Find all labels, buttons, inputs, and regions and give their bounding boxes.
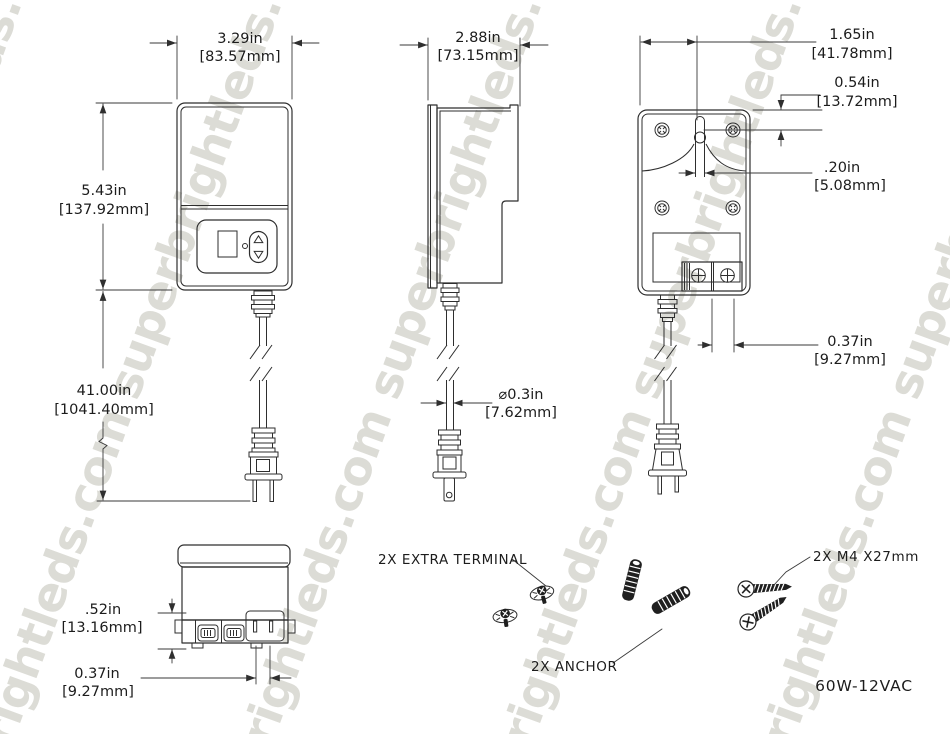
dim-terminal-spacing-mm: [9.27mm] — [814, 352, 886, 368]
plug-profile — [433, 430, 466, 501]
power-cord — [664, 322, 671, 425]
extra-terminal-part — [529, 583, 557, 607]
arrow-up-icon — [254, 236, 263, 243]
dimensional-drawing: 3.29in [83.57mm] 5.43in [137.92mm] 41.00… — [0, 0, 950, 734]
anchor-label: 2X ANCHOR — [531, 659, 617, 675]
anchor-part — [621, 558, 643, 602]
part-labels: 2X EXTRA TERMINAL 2X ANCHOR 2X M4 X27mm … — [378, 549, 919, 695]
mounting-screw — [655, 123, 740, 215]
dim-side-width-mm: [73.15mm] — [437, 48, 518, 64]
power-cord — [260, 317, 267, 428]
dim-front-height-mm: [137.92mm] — [59, 202, 149, 218]
dim-front-width-in: 3.29in — [217, 31, 263, 47]
cord-break-symbol — [250, 345, 272, 381]
side-view — [428, 105, 518, 501]
strain-relief — [252, 291, 275, 317]
bottom-view — [175, 545, 295, 648]
ac-socket — [246, 611, 284, 641]
extra-terminal-label: 2X EXTRA TERMINAL — [378, 552, 527, 568]
dim-bottom-lip-mm: [13.16mm] — [61, 620, 142, 636]
cord-break-symbol — [655, 345, 677, 381]
anchor-leader — [613, 629, 662, 663]
strain-relief — [441, 284, 459, 311]
dim-slot-width-in: .20in — [824, 160, 860, 176]
dim-keyhole-offset-in: 1.65in — [829, 27, 875, 43]
dim-bottom-offset-in: 0.37in — [74, 666, 120, 682]
recessed-panel — [653, 233, 740, 282]
mounting-screw-part — [738, 579, 793, 598]
cord-break-symbol — [437, 345, 459, 381]
power-cord — [447, 310, 454, 430]
display-window — [218, 231, 237, 257]
technical-drawing-page: superbrightleds.com superbrightleds.com … — [0, 0, 950, 734]
model-label: 60W-12VAC — [815, 677, 913, 695]
front-view — [177, 103, 292, 502]
plug-side — [245, 428, 282, 502]
dim-bottom-lip-in: .52in — [85, 602, 121, 618]
screws-label: 2X M4 X27mm — [813, 549, 919, 565]
dim-terminal-spacing-in: 0.37in — [827, 334, 873, 350]
dim-bottom-offset-mm: [9.27mm] — [62, 684, 134, 700]
led-indicator — [243, 244, 248, 249]
dim-keyhole-offset-mm: [41.78mm] — [811, 46, 892, 62]
accessory-parts — [492, 558, 792, 633]
dim-cord-length-mm: [1041.40mm] — [54, 402, 154, 418]
cable-channel-curves — [642, 144, 746, 171]
dim-side-width-in: 2.88in — [455, 30, 501, 46]
keyhole-slot — [696, 117, 705, 178]
dim-keyhole-depth-in: 0.54in — [834, 75, 880, 91]
back-view — [638, 110, 750, 494]
dim-slot-width-mm: [5.08mm] — [814, 178, 886, 194]
dimension-lines — [96, 36, 822, 684]
keyhole-circle — [695, 132, 706, 143]
dim-cord-dia-mm: [7.62mm] — [485, 405, 557, 421]
dim-cord-dia-in: ⌀0.3in — [498, 387, 543, 403]
anchor-part — [650, 584, 692, 615]
terminal-block — [682, 262, 742, 291]
dim-cord-length-in: 41.00in — [77, 383, 132, 399]
dim-front-width-mm: [83.57mm] — [199, 49, 280, 65]
dim-keyhole-depth-mm: [13.72mm] — [816, 94, 897, 110]
screw-leader — [773, 557, 810, 586]
strain-relief — [658, 295, 677, 322]
plug-front — [649, 424, 687, 494]
arrow-down-icon — [254, 251, 263, 258]
dim-front-height-in: 5.43in — [81, 183, 127, 199]
extra-terminal-part — [492, 607, 518, 628]
